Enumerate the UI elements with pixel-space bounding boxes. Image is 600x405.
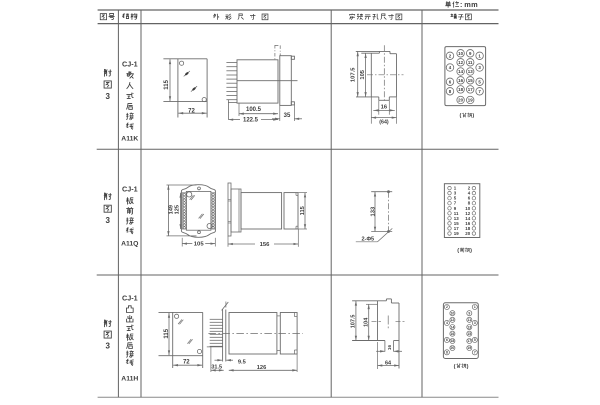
svg-text:16: 16: [387, 345, 392, 351]
svg-text::: :: [460, 2, 462, 9]
svg-text:12: 12: [451, 318, 455, 322]
svg-text:133: 133: [370, 206, 376, 216]
svg-text:A11Q: A11Q: [121, 241, 138, 248]
svg-text:18: 18: [458, 87, 463, 92]
svg-text:2: 2: [446, 305, 448, 309]
svg-text:CJ-1: CJ-1: [122, 294, 138, 303]
svg-text:31.5: 31.5: [211, 364, 222, 370]
svg-text:14: 14: [458, 69, 463, 74]
svg-text:19: 19: [454, 231, 459, 236]
svg-text:1: 1: [474, 305, 476, 309]
svg-text:115: 115: [164, 328, 170, 338]
svg-text:3: 3: [474, 321, 476, 325]
svg-text:7: 7: [474, 351, 476, 355]
svg-text:A11K: A11K: [121, 136, 138, 143]
svg-text:107.5: 107.5: [351, 315, 357, 329]
svg-text:11: 11: [468, 318, 472, 322]
svg-text:11: 11: [468, 60, 473, 65]
svg-text:15: 15: [468, 78, 473, 83]
svg-text:126: 126: [257, 365, 267, 371]
svg-text:13: 13: [467, 325, 471, 329]
svg-text:mm: mm: [464, 0, 478, 9]
svg-text:20: 20: [465, 231, 470, 236]
svg-text:16: 16: [458, 78, 463, 83]
svg-text:20: 20: [458, 98, 463, 103]
svg-text:(64): (64): [379, 120, 389, 126]
svg-text:20: 20: [451, 346, 455, 350]
svg-text:16: 16: [381, 104, 388, 110]
svg-text:72: 72: [188, 109, 195, 115]
svg-text:3: 3: [105, 341, 110, 350]
svg-text:16: 16: [451, 332, 455, 336]
svg-text:(: (: [457, 248, 459, 254]
svg-text:105: 105: [194, 242, 205, 248]
svg-text:17: 17: [467, 339, 471, 343]
svg-text:8: 8: [446, 351, 448, 355]
svg-text:CJ-1: CJ-1: [122, 185, 138, 194]
svg-text:125: 125: [174, 205, 180, 214]
svg-text:156: 156: [260, 242, 271, 248]
svg-text:3: 3: [105, 92, 110, 101]
svg-text:14: 14: [451, 325, 455, 329]
svg-text:(: (: [454, 364, 456, 370]
svg-text:122.5: 122.5: [243, 117, 259, 123]
svg-text:3: 3: [105, 216, 110, 225]
svg-text:Φ5: Φ5: [366, 236, 374, 242]
svg-text:115: 115: [300, 206, 306, 215]
svg-text:115: 115: [164, 79, 170, 89]
svg-text:19: 19: [468, 98, 473, 103]
svg-text:19: 19: [467, 346, 471, 350]
svg-text:105: 105: [360, 69, 366, 79]
svg-text:13: 13: [468, 69, 473, 74]
svg-text:A11H: A11H: [121, 376, 138, 383]
svg-text:35: 35: [284, 113, 291, 119]
svg-text:9.5: 9.5: [238, 359, 246, 365]
svg-text:64: 64: [385, 360, 392, 366]
svg-text:4: 4: [446, 321, 448, 325]
svg-text:104: 104: [364, 317, 370, 327]
svg-text:): ): [470, 248, 472, 254]
svg-text:(: (: [459, 113, 461, 119]
svg-text:CJ-1: CJ-1: [122, 60, 138, 69]
svg-text:72: 72: [183, 359, 190, 365]
svg-text:9: 9: [468, 311, 470, 315]
svg-text:10: 10: [458, 51, 463, 56]
svg-text:100.5: 100.5: [246, 107, 262, 113]
svg-text:12: 12: [458, 60, 463, 65]
svg-text:10: 10: [451, 311, 455, 315]
svg-text:): ): [472, 113, 474, 119]
svg-text:18: 18: [451, 339, 455, 343]
svg-text:): ): [467, 364, 469, 370]
svg-text:5: 5: [474, 338, 476, 342]
svg-text:107.5: 107.5: [351, 67, 357, 82]
svg-text:15: 15: [467, 332, 471, 336]
svg-text:17: 17: [468, 87, 473, 92]
svg-text:6: 6: [446, 338, 448, 342]
